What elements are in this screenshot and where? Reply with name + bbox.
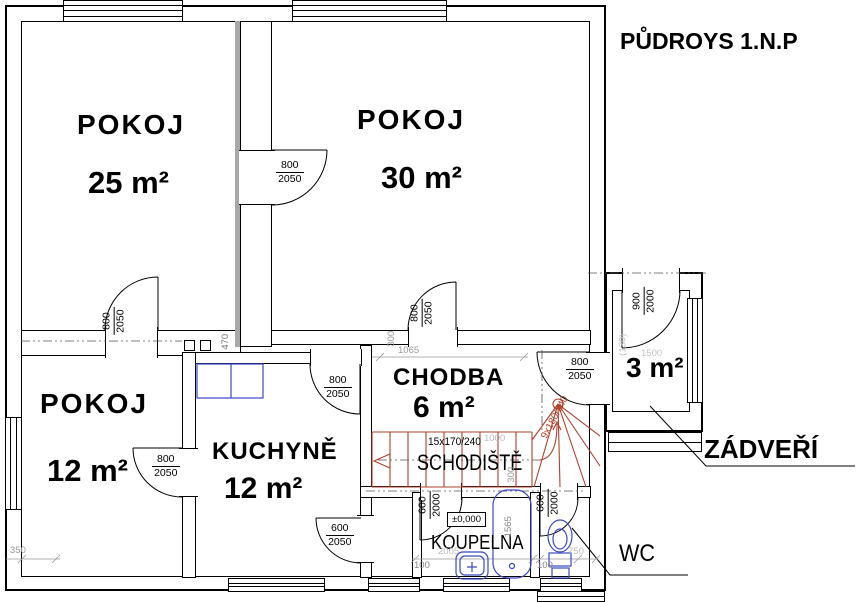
floor-plan: PŮDROYS 1.N.P POKOJ 25 m² POKOJ 30 m² PO… xyxy=(0,0,859,602)
door-dim-kuchyne-chodba: 800 2050 xyxy=(324,374,352,400)
window-pokoj30 xyxy=(292,5,447,22)
room-area-pokoj12: 12 m² xyxy=(47,455,128,486)
chimney-flue-icon xyxy=(200,340,211,351)
door-dim-zadveri-entry: 900 2000 xyxy=(631,287,657,315)
room-label-zadveri: ZÁDVEŘÍ xyxy=(704,436,818,462)
room-label-wc: WC xyxy=(619,542,655,566)
window-koupelna xyxy=(443,578,510,592)
door-dim-wc: 600 2000 xyxy=(535,489,561,517)
dim-2005: 2005 xyxy=(438,547,459,557)
window-spiz xyxy=(368,578,420,592)
stair-run-label: 15x170/240 xyxy=(428,437,481,448)
dim-1565: 1565 xyxy=(504,516,514,537)
room-area-pokoj30: 30 m² xyxy=(381,162,462,193)
door-opening-p25-p30 xyxy=(239,150,275,205)
dim-470: 470 xyxy=(221,334,231,350)
window-pokoj25 xyxy=(63,5,183,22)
dim-130: (130) xyxy=(618,334,628,356)
room-area-kuchyne: 12 m² xyxy=(224,474,302,504)
room-label-pokoj12: POKOJ xyxy=(40,390,148,418)
door-opening-p12-kuchyne xyxy=(179,448,198,497)
plan-title: PŮDROYS 1.N.P xyxy=(620,30,798,53)
dim-300: 300 xyxy=(387,331,397,347)
door-dim-chodba-zadveri: 800 2050 xyxy=(566,356,594,382)
dim-100-koupelna: 100 xyxy=(414,561,430,571)
door-dim-p12-kuchyne: 800 2050 xyxy=(152,453,180,479)
door-dim-p30-chodba: 800 2050 xyxy=(409,299,435,327)
dim-750: 750 xyxy=(568,547,584,557)
room-label-pokoj30: POKOJ xyxy=(357,106,465,134)
dim-100-wc: 100 xyxy=(537,561,553,571)
door-dim-p25-p30: 800 2050 xyxy=(276,159,304,185)
dim-1000: 1000 xyxy=(484,434,505,444)
door-dim-kuchyne-spiz: 600 2050 xyxy=(326,522,354,548)
dim-1500: 1500 xyxy=(641,349,662,359)
window-wc xyxy=(540,578,582,592)
window-kuchyne xyxy=(228,578,325,592)
door-opening-kuchyne-spiz xyxy=(357,515,374,563)
door-dim-p25-p12: 800 2050 xyxy=(101,307,127,335)
dim-300b: 300 xyxy=(507,467,517,483)
room-area-chodba: 6 m² xyxy=(413,393,475,423)
annex-exterior-steps xyxy=(608,432,702,452)
door-dim-koupelna: 600 2000 xyxy=(417,491,443,519)
room-label-chodba: CHODBA xyxy=(393,366,504,390)
chimney-flue-icon xyxy=(184,340,195,351)
room-label-kuchyne: KUCHYNĚ xyxy=(212,440,338,464)
wc-exterior-steps xyxy=(537,591,605,602)
room-area-pokoj25: 25 m² xyxy=(88,167,169,198)
room-label-pokoj25: POKOJ xyxy=(77,111,185,139)
level-mark: ±0,000 xyxy=(447,512,486,527)
door-opening-p30-chodba xyxy=(408,327,458,347)
window-zadveri xyxy=(687,298,703,403)
window-pokoj12 xyxy=(5,417,22,510)
door-opening-kuchyne-chodba xyxy=(310,349,362,366)
dim-1065: 1065 xyxy=(398,346,419,356)
dim-350: 350 xyxy=(10,546,26,556)
